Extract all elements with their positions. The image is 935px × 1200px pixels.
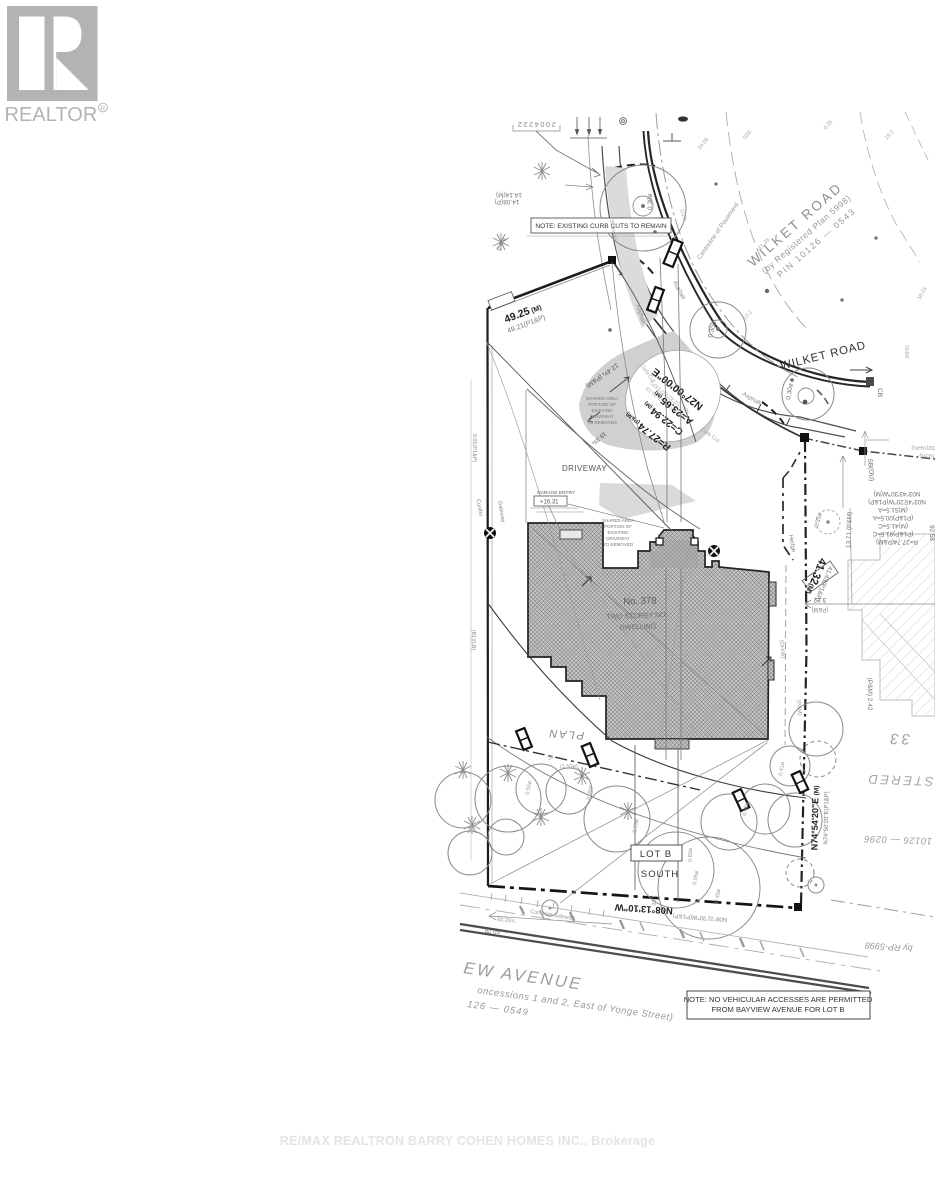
- svg-text:14.14(M): 14.14(M): [496, 191, 522, 198]
- svg-text:OHW: OHW: [903, 345, 909, 359]
- svg-text:34: 34: [547, 755, 554, 762]
- svg-text:PLAN: PLAN: [547, 727, 584, 742]
- svg-text:(P1&P)91.5=C: (P1&P)91.5=C: [872, 530, 913, 537]
- svg-text:EXISTING: EXISTING: [591, 408, 613, 413]
- svg-text:(OH/W): (OH/W): [778, 640, 786, 659]
- svg-text:19.2: 19.2: [884, 129, 895, 141]
- svg-text:GARAGE ENTRY: GARAGE ENTRY: [537, 490, 576, 496]
- svg-text:0.35ø: 0.35ø: [742, 801, 750, 817]
- svg-text:(M)51.5=A: (M)51.5=A: [877, 506, 907, 513]
- svg-text:+16.31: +16.31: [540, 500, 559, 506]
- svg-text:33: 33: [887, 730, 910, 748]
- svg-text:9.01(P1&P): 9.01(P1&P): [471, 434, 477, 463]
- svg-text:92 58: 92 58: [928, 525, 935, 541]
- svg-text:Hedge: Hedge: [787, 534, 796, 553]
- svg-text:CB: CB: [876, 388, 883, 397]
- svg-text:WILKET ROAD: WILKET ROAD: [779, 340, 867, 373]
- svg-text:Centreline of Pavement: Centreline of Pavement: [696, 201, 741, 261]
- svg-text:DWELLING: DWELLING: [620, 623, 657, 631]
- svg-text:TO REMOVED: TO REMOVED: [603, 542, 634, 547]
- svg-text:ISTERED: ISTERED: [866, 772, 935, 790]
- svg-text:Gateway: Gateway: [496, 501, 506, 524]
- svg-text:18.01: 18.01: [917, 286, 929, 301]
- svg-text:(P1&P)00.5=A: (P1&P)00.5=A: [872, 514, 913, 521]
- svg-text:14.08(P): 14.08(P): [495, 198, 520, 205]
- svg-text:0.30ø: 0.30ø: [785, 383, 795, 401]
- svg-text:PORTION OF: PORTION OF: [604, 524, 632, 529]
- svg-text:N74°54'20"E (M): N74°54'20"E (M): [809, 785, 820, 850]
- svg-text:N74°50'20"E(P1&P): N74°50'20"E(P1&P): [824, 791, 831, 844]
- svg-text:0.35ø: 0.35ø: [586, 785, 594, 801]
- svg-text:0.55ø: 0.55ø: [525, 780, 533, 796]
- svg-text:REALTOR: REALTOR: [5, 104, 98, 126]
- svg-text:10126 — 0296: 10126 — 0296: [863, 833, 932, 846]
- svg-text:R: R: [100, 105, 105, 112]
- svg-text:EXISTING: EXISTING: [607, 530, 629, 535]
- svg-text:SHARED AREA: SHARED AREA: [602, 518, 634, 523]
- svg-text:SOUTH: SOUTH: [641, 869, 679, 880]
- svg-text:60.29¾: 60.29¾: [497, 917, 516, 925]
- svg-text:(M)"02(¾H¾): (M)"02(¾H¾): [911, 444, 935, 450]
- svg-text:(M)41.5=C: (M)41.5=C: [878, 522, 908, 529]
- svg-text:SSE: SSE: [742, 129, 754, 142]
- svg-text:No. 378: No. 378: [623, 595, 657, 607]
- svg-text:FROM BAYVIEW AVENUE FOR LOT B: FROM BAYVIEW AVENUE FOR LOT B: [712, 1005, 845, 1014]
- svg-text:(P&M) 2.42: (P&M) 2.42: [866, 678, 873, 711]
- svg-text:DRIVEWAY: DRIVEWAY: [590, 414, 614, 419]
- svg-text:(B1)(LB): (B1)(LB): [470, 630, 476, 651]
- svg-text:0.45ø: 0.45ø: [714, 888, 722, 904]
- svg-text:by RP-5998: by RP-5998: [865, 940, 913, 953]
- svg-text:N08°13'10"W: N08°13'10"W: [614, 901, 673, 916]
- svg-text:0.35ø: 0.35ø: [814, 512, 824, 529]
- svg-text:0.55ø: 0.55ø: [632, 818, 640, 834]
- svg-text:3.22: 3.22: [813, 596, 826, 603]
- svg-text:1.80: 1.80: [650, 895, 656, 906]
- svg-text:SB(OU): SB(OU): [866, 458, 875, 481]
- svg-text:2004222: 2004222: [516, 120, 556, 129]
- svg-text:TO REMOVED: TO REMOVED: [587, 420, 618, 425]
- svg-text:0.41ø: 0.41ø: [778, 761, 786, 777]
- svg-text:NOTE: EXISTING CURB CUTS TO RE: NOTE: EXISTING CURB CUTS TO REMAIN: [535, 223, 667, 230]
- svg-text:(1.50ø): (1.50ø): [560, 764, 578, 770]
- svg-text:N08°11'30"W(P1&P): N08°11'30"W(P1&P): [672, 912, 727, 922]
- svg-text:SHARED AREA: SHARED AREA: [586, 396, 618, 401]
- svg-text:34.05: 34.05: [697, 137, 710, 151]
- svg-text:Conifer: Conifer: [474, 499, 483, 518]
- svg-text:N03°43'30"W(M): N03°43'30"W(M): [874, 490, 921, 498]
- svg-text:(¾O¾): (¾O¾): [919, 452, 935, 458]
- svg-text:0.30ø: 0.30ø: [647, 193, 654, 210]
- svg-text:0.35: 0.35: [823, 119, 834, 131]
- svg-text:DRIVEWAY: DRIVEWAY: [606, 536, 630, 541]
- svg-text:13.71 (P&M): 13.71 (P&M): [845, 512, 853, 549]
- svg-text:LOT B: LOT B: [640, 849, 672, 860]
- svg-text:DRIVEWAY: DRIVEWAY: [562, 464, 607, 473]
- svg-text:NOTE: NO VEHICULAR ACCESSES AR: NOTE: NO VEHICULAR ACCESSES ARE PERMITTE…: [684, 995, 873, 1004]
- svg-text:0.05ø: 0.05ø: [692, 870, 700, 886]
- svg-text:N03°45'20"W(P1&P): N03°45'20"W(P1&P): [868, 498, 926, 506]
- svg-text:12.2: 12.2: [742, 310, 754, 322]
- svg-text:R=27.74(P&M): R=27.74(P&M): [876, 538, 918, 545]
- svg-text:0.60ø: 0.60ø: [688, 847, 694, 862]
- svg-text:(P&M): (P&M): [812, 606, 829, 612]
- svg-text:PORTION OF: PORTION OF: [588, 402, 616, 407]
